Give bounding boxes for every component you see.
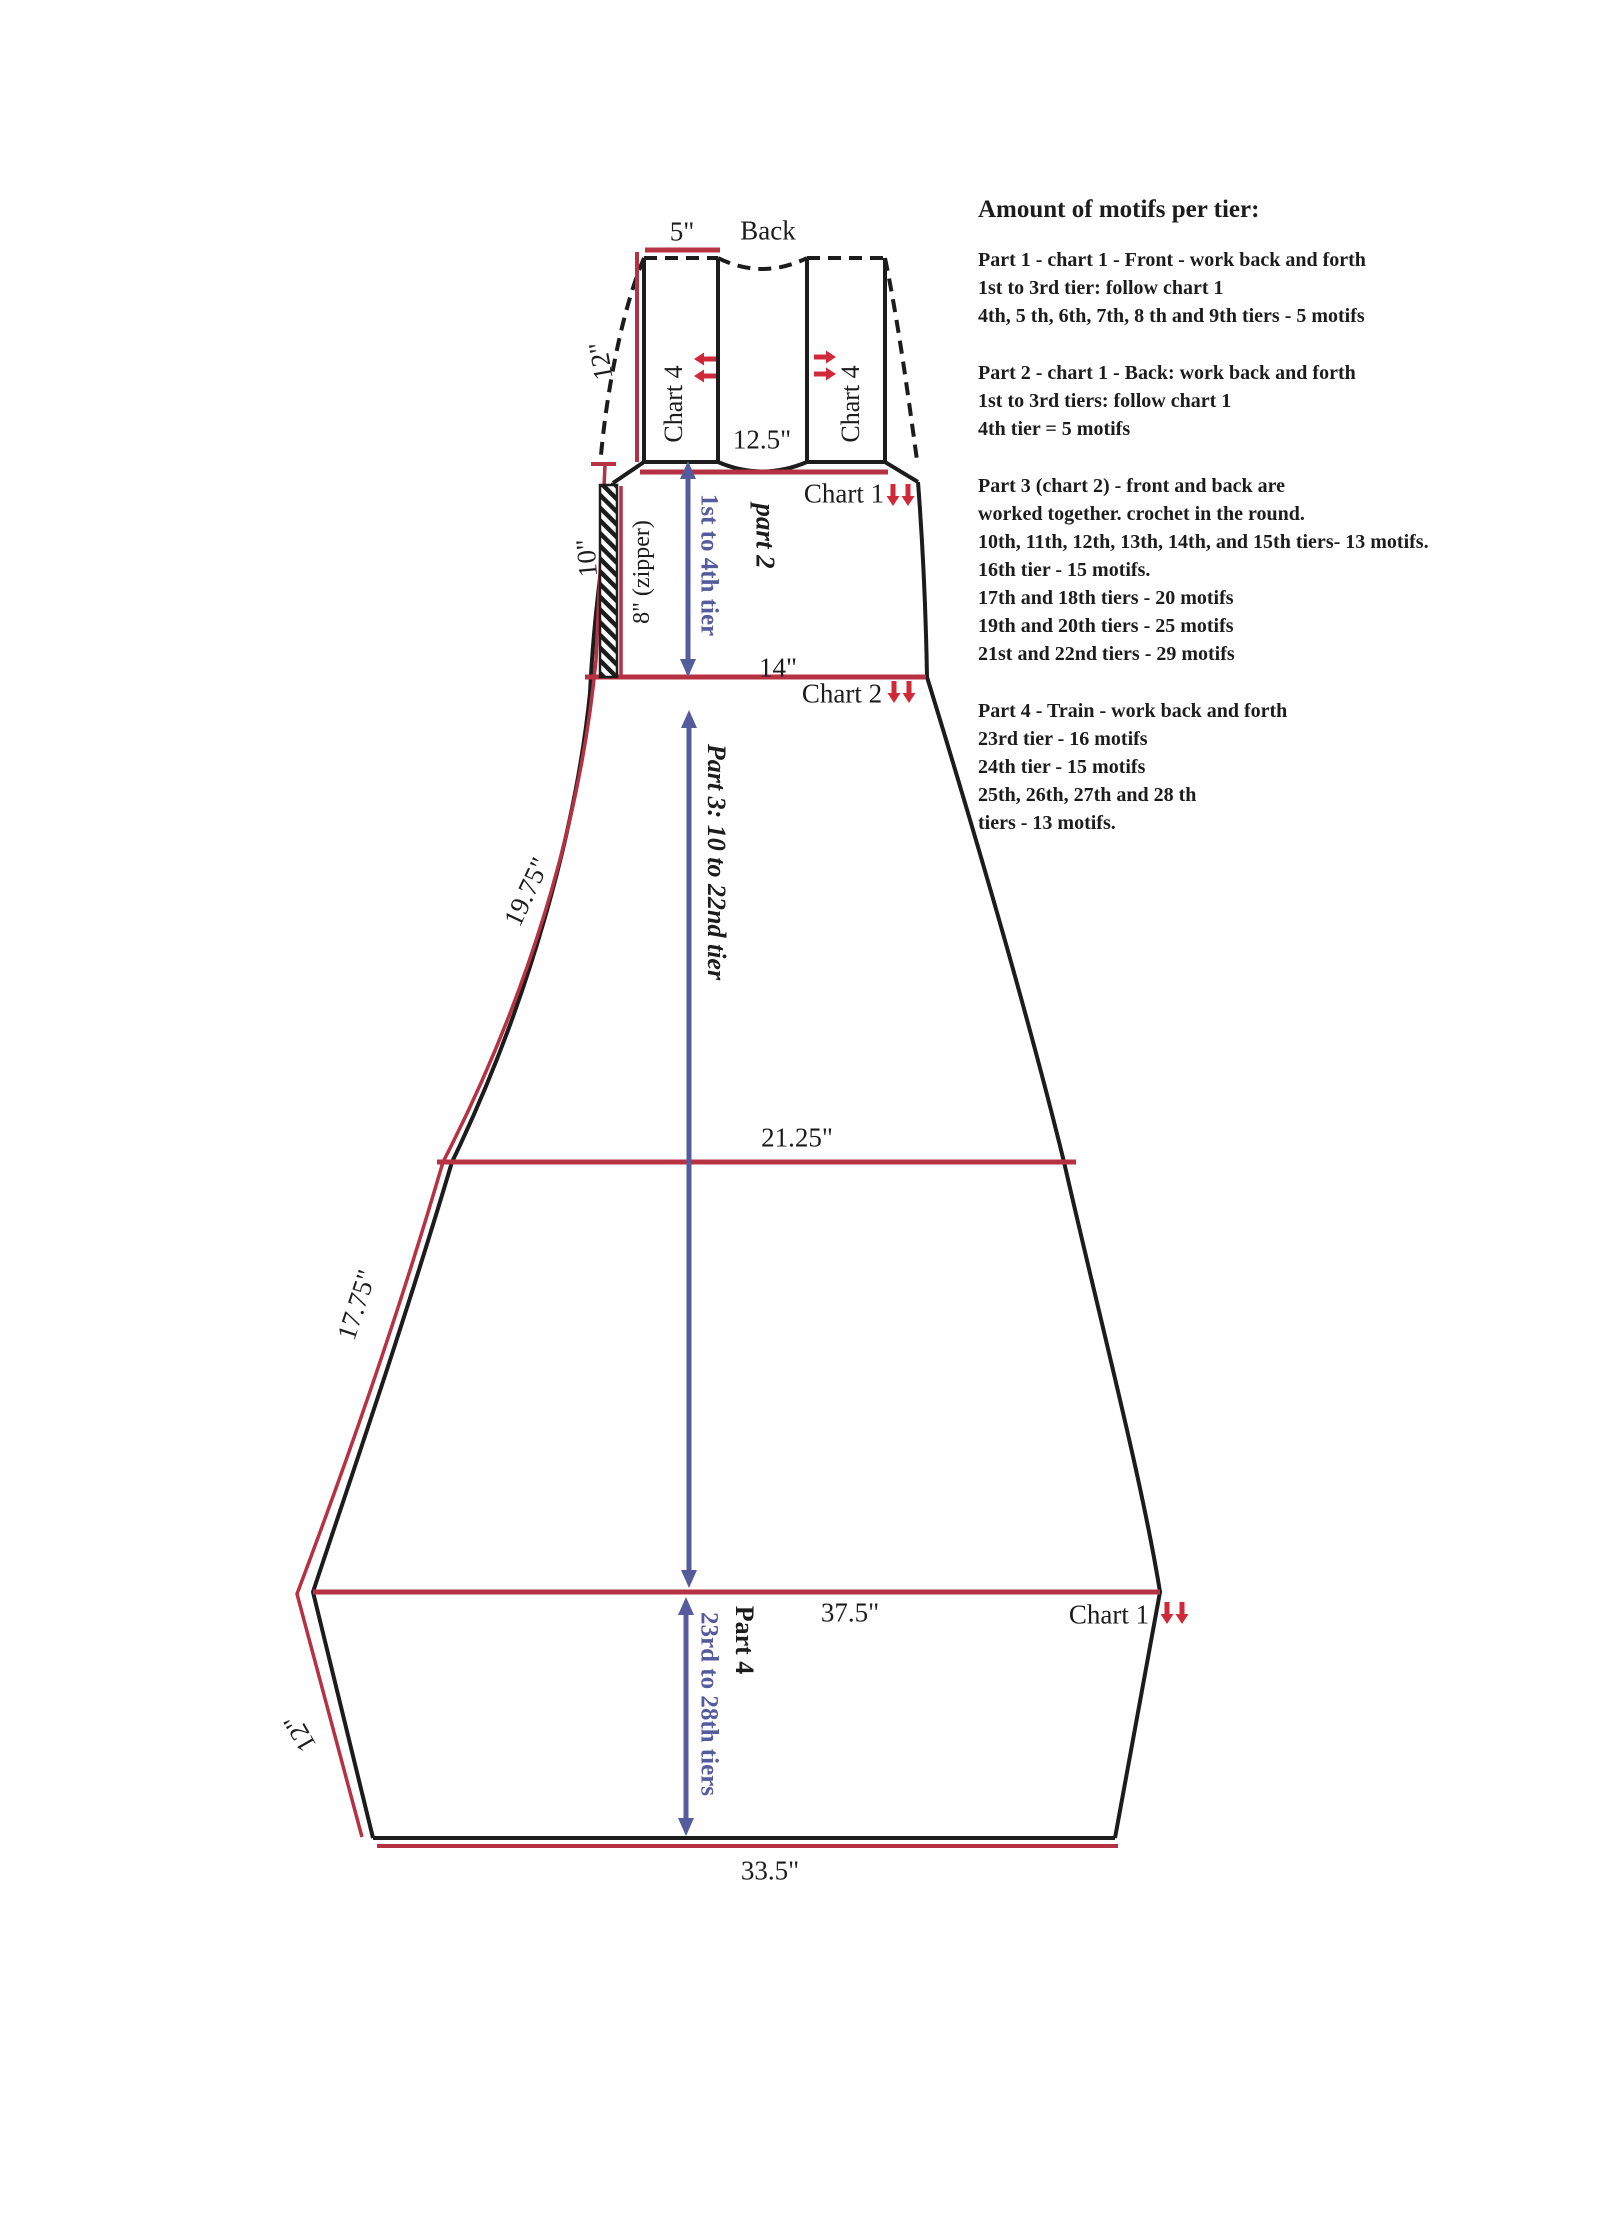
measurement-10in: 10" (572, 538, 602, 578)
part2-label: part 2 (752, 503, 779, 568)
part4-line: tiers - 13 motifs. (978, 809, 1578, 837)
part4-line: 23rd tier - 16 motifs (978, 725, 1578, 753)
chart4-right-label: Chart 4 (838, 365, 864, 442)
part1-notes: Part 1 - chart 1 - Front - work back and… (978, 246, 1578, 330)
measure-curve-left-edge (297, 465, 605, 1837)
part2-line: 4th tier = 5 motifs (978, 415, 1578, 443)
part4-line: Part 4 - Train - work back and forth (978, 697, 1578, 725)
zipper-bar-hatched (600, 485, 617, 677)
measurement-5in: 5" (670, 219, 695, 246)
chart2-direction-arrows (888, 681, 916, 703)
measurement-12in-bodice: 12" (584, 340, 617, 382)
part3-notes: Part 3 (chart 2) - front and back are wo… (978, 472, 1578, 668)
blue-arrow-part4-23rd-28th-tiers (678, 1597, 694, 1836)
motifs-heading: Amount of motifs per tier: (978, 196, 1578, 224)
part1-line: 4th, 5 th, 6th, 7th, 8 th and 9th tiers … (978, 302, 1578, 330)
part2-line: Part 2 - chart 1 - Back: work back and f… (978, 359, 1578, 387)
chart1-bottom-label: Chart 1 (1069, 1602, 1149, 1629)
crochet-dress-pattern-page: 5" Back 12" Chart 4 Chart 4 12.5" Chart … (0, 0, 1600, 2235)
part3-line: 10th, 11th, 12th, 13th, 14th, and 15th t… (978, 528, 1578, 556)
part4-notes: Part 4 - Train - work back and forth 23r… (978, 697, 1578, 837)
measurement-12-5in: 12.5" (733, 427, 791, 454)
chart1-top-label: Chart 1 (804, 481, 884, 508)
measurement-37-5in: 37.5" (821, 1600, 879, 1627)
motifs-per-tier-notes: Amount of motifs per tier: Part 1 - char… (978, 196, 1578, 866)
part3-line: 21st and 22nd tiers - 29 motifs (978, 640, 1578, 668)
part2-tier-range-label: 1st to 4th tier (697, 494, 722, 636)
part3-line: 16th tier - 15 motifs. (978, 556, 1578, 584)
part3-line: 19th and 20th tiers - 25 motifs (978, 612, 1578, 640)
measurement-21-25in: 21.25" (761, 1125, 833, 1152)
part1-line: 1st to 3rd tier: follow chart 1 (978, 274, 1578, 302)
part4-line: 24th tier - 15 motifs (978, 753, 1578, 781)
part3-label: Part 3: 10 to 22nd tier (703, 744, 729, 980)
chart2-label: Chart 2 (802, 681, 882, 708)
blue-arrow-part2-1st-4th-tier (680, 461, 696, 677)
part4-line: 25th, 26th, 27th and 28 th (978, 781, 1578, 809)
chart1-bottom-direction-arrows (1161, 1602, 1189, 1624)
chart1-top-direction-arrows (887, 484, 915, 506)
part3-line: Part 3 (chart 2) - front and back are (978, 472, 1578, 500)
zipper-label: 8" (zipper) (630, 520, 654, 624)
part1-line: Part 1 - chart 1 - Front - work back and… (978, 246, 1578, 274)
part4-label: Part 4 (731, 1606, 757, 1675)
part2-line: 1st to 3rd tiers: follow chart 1 (978, 387, 1578, 415)
measurement-33-5in: 33.5" (741, 1858, 799, 1885)
chart4-left-label: Chart 4 (661, 365, 687, 442)
left-strap-direction-arrows (694, 353, 716, 383)
right-strap-direction-arrows (814, 351, 836, 381)
part4-tier-range-label: 23rd to 28th tiers (697, 1612, 722, 1796)
blue-arrow-part3-10th-22nd-tier (681, 710, 697, 1588)
part3-line: worked together. crochet in the round. (978, 500, 1578, 528)
measurement-14in: 14" (759, 655, 797, 682)
part3-line: 17th and 18th tiers - 20 motifs (978, 584, 1578, 612)
back-label: Back (740, 218, 795, 245)
part2-notes: Part 2 - chart 1 - Back: work back and f… (978, 359, 1578, 443)
